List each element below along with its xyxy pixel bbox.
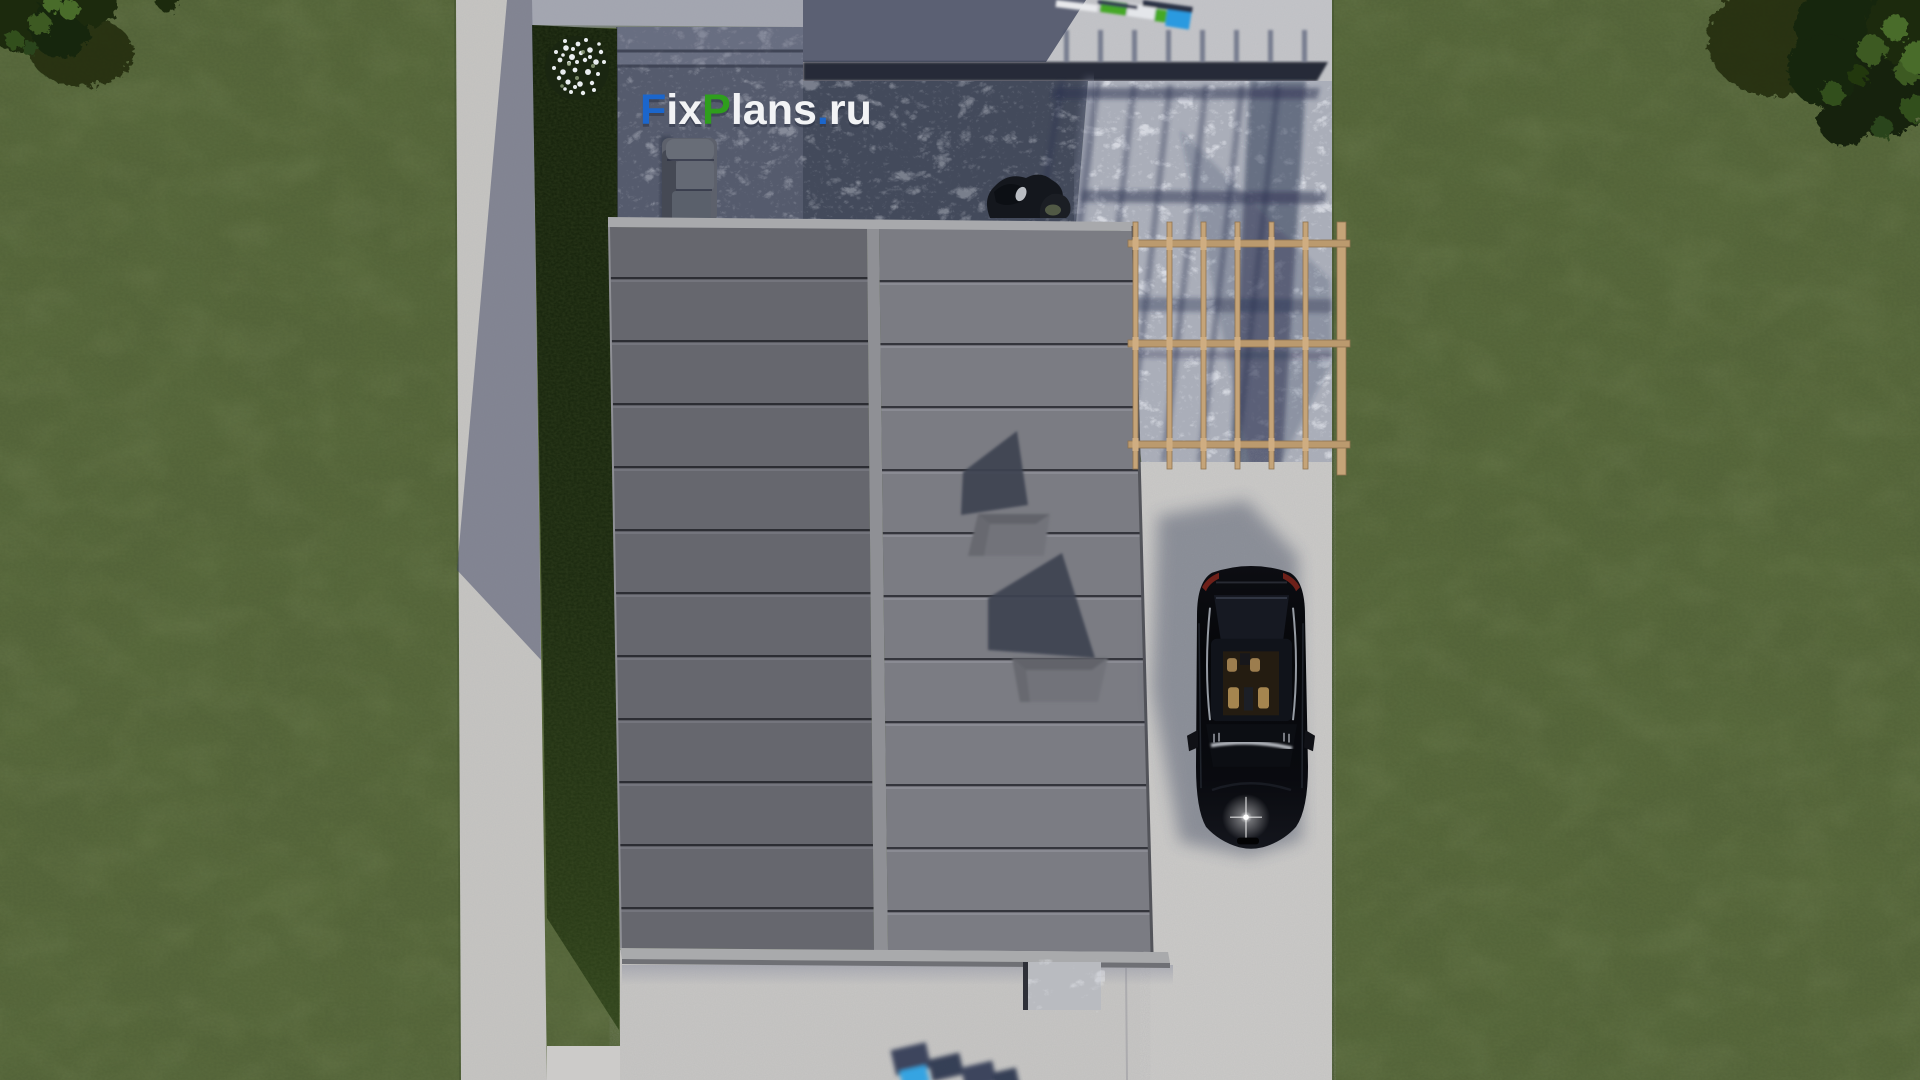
svg-text:FixPlans.ru: FixPlans.ru [640, 86, 872, 134]
